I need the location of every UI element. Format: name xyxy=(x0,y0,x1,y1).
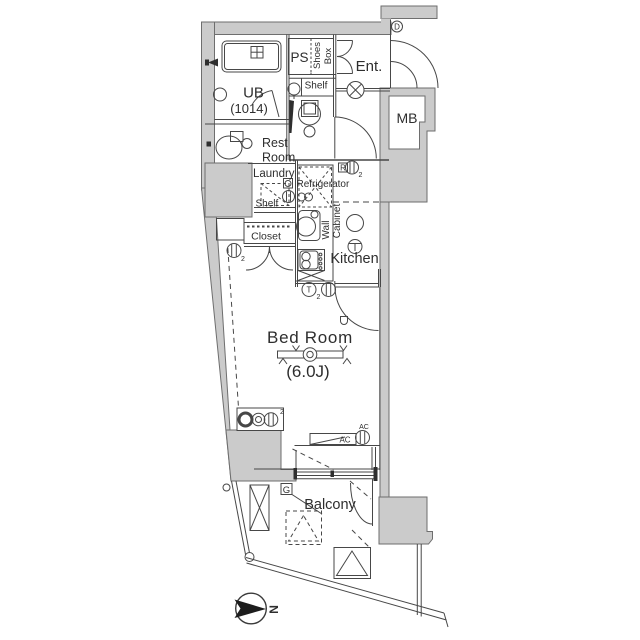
svg-text:Box: Box xyxy=(323,48,334,65)
svg-text:2: 2 xyxy=(280,409,284,416)
svg-text:T: T xyxy=(307,286,312,295)
svg-text:MB: MB xyxy=(397,110,418,126)
svg-text:Laundry: Laundry xyxy=(253,168,295,180)
svg-text:Ent.: Ent. xyxy=(356,58,383,75)
svg-text:Refrigerator: Refrigerator xyxy=(297,179,350,190)
svg-text:2: 2 xyxy=(241,256,245,263)
svg-text:Shoes: Shoes xyxy=(312,42,323,69)
svg-text:Cabinet: Cabinet xyxy=(332,204,343,239)
svg-text:Closet: Closet xyxy=(251,231,281,243)
svg-text:Rest: Rest xyxy=(262,136,288,150)
svg-text:Balcony: Balcony xyxy=(304,497,356,513)
svg-text:UB: UB xyxy=(243,85,264,102)
svg-text:Kitchen: Kitchen xyxy=(330,251,378,267)
svg-text:Room: Room xyxy=(262,151,295,165)
svg-text:(6.0J): (6.0J) xyxy=(286,362,329,381)
svg-text:PS: PS xyxy=(290,50,308,65)
svg-text:Bed Room: Bed Room xyxy=(267,328,353,347)
svg-text:G: G xyxy=(283,485,290,496)
svg-text:2: 2 xyxy=(317,294,321,301)
svg-text:Shelf: Shelf xyxy=(305,81,328,92)
svg-text:AC: AC xyxy=(359,424,369,431)
svg-text:N: N xyxy=(266,605,280,614)
svg-text:Wall: Wall xyxy=(321,220,332,239)
svg-text:Shelf: Shelf xyxy=(256,199,279,210)
svg-text:AC: AC xyxy=(339,436,350,445)
svg-text:R: R xyxy=(340,164,346,173)
svg-text:2: 2 xyxy=(359,172,363,179)
svg-text:D: D xyxy=(394,23,400,32)
svg-text:(1014): (1014) xyxy=(230,101,268,116)
